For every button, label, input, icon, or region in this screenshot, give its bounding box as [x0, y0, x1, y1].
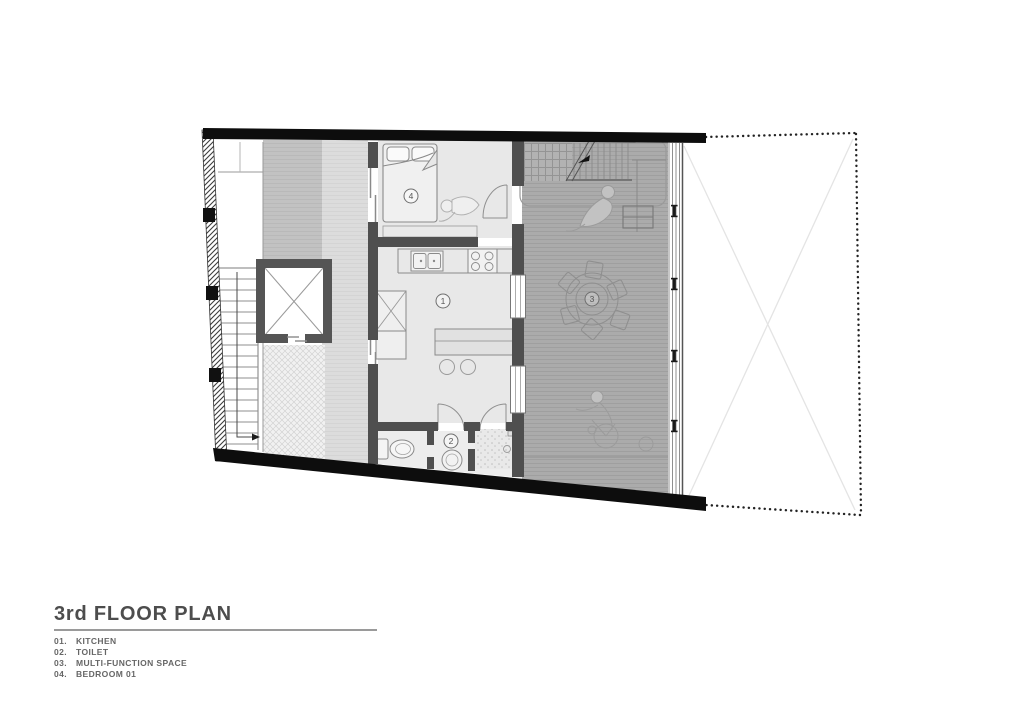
hallway-floor-medium: [263, 140, 323, 262]
door-joint-marks: [671, 205, 678, 432]
void-cross-line: [684, 146, 855, 510]
legend-number: 03.: [54, 658, 76, 669]
stove: [468, 249, 497, 273]
room-badge-multifunction: 3: [585, 292, 599, 306]
room-number-multifunction: 3: [590, 294, 595, 304]
shower-floor: [475, 429, 512, 469]
room-number-bedroom: 4: [409, 191, 414, 201]
legend: 01. KITCHEN 02. TOILET 03. MULTI-FUNCTIO…: [54, 636, 474, 680]
tall-cabinet-shaft: [376, 291, 406, 359]
bedroom-cabinet: [383, 226, 477, 237]
legend-label: BEDROOM 01: [76, 669, 136, 680]
title-underline: [54, 629, 377, 631]
room-number-toilet: 2: [449, 436, 454, 446]
title-block: 3rd FLOOR PLAN 01. KITCHEN 02. TOILET 03…: [54, 603, 474, 680]
kitchen-sink: [411, 251, 443, 271]
legend-label: MULTI-FUNCTION SPACE: [76, 658, 187, 669]
vestibule-floor: [263, 345, 325, 460]
wc-fixture: [377, 439, 414, 459]
legend-item-kitchen: 01. KITCHEN: [54, 636, 474, 647]
legend-number: 01.: [54, 636, 76, 647]
pillow: [387, 147, 409, 161]
page-title: 3rd FLOOR PLAN: [54, 603, 474, 626]
dotted-boundary: [706, 133, 861, 515]
legend-item-bedroom: 04. BEDROOM 01: [54, 669, 474, 680]
elevator-door: [287, 337, 307, 341]
floor-plan-page: 1 2 3 4 3rd FLOOR PLAN 01. KITCHEN: [0, 0, 1024, 725]
terrace-void: [684, 133, 861, 515]
room-badge-toilet: 2: [444, 434, 458, 448]
legend-item-multifunction: 03. MULTI-FUNCTION SPACE: [54, 658, 474, 669]
wash-basin: [442, 450, 462, 470]
bed: [383, 144, 437, 222]
legend-label: TOILET: [76, 647, 108, 658]
legend-number: 02.: [54, 647, 76, 658]
legend-item-toilet: 02. TOILET: [54, 647, 474, 658]
legend-label: KITCHEN: [76, 636, 117, 647]
legend-number: 04.: [54, 669, 76, 680]
room-number-kitchen: 1: [441, 296, 446, 306]
elevator: [256, 259, 332, 343]
storage-grid-area: [522, 143, 572, 181]
east-glass-wall: [669, 143, 683, 496]
void-cross-line: [686, 139, 853, 502]
room-badge-kitchen: 1: [436, 294, 450, 308]
room-badge-bedroom: 4: [404, 189, 418, 203]
